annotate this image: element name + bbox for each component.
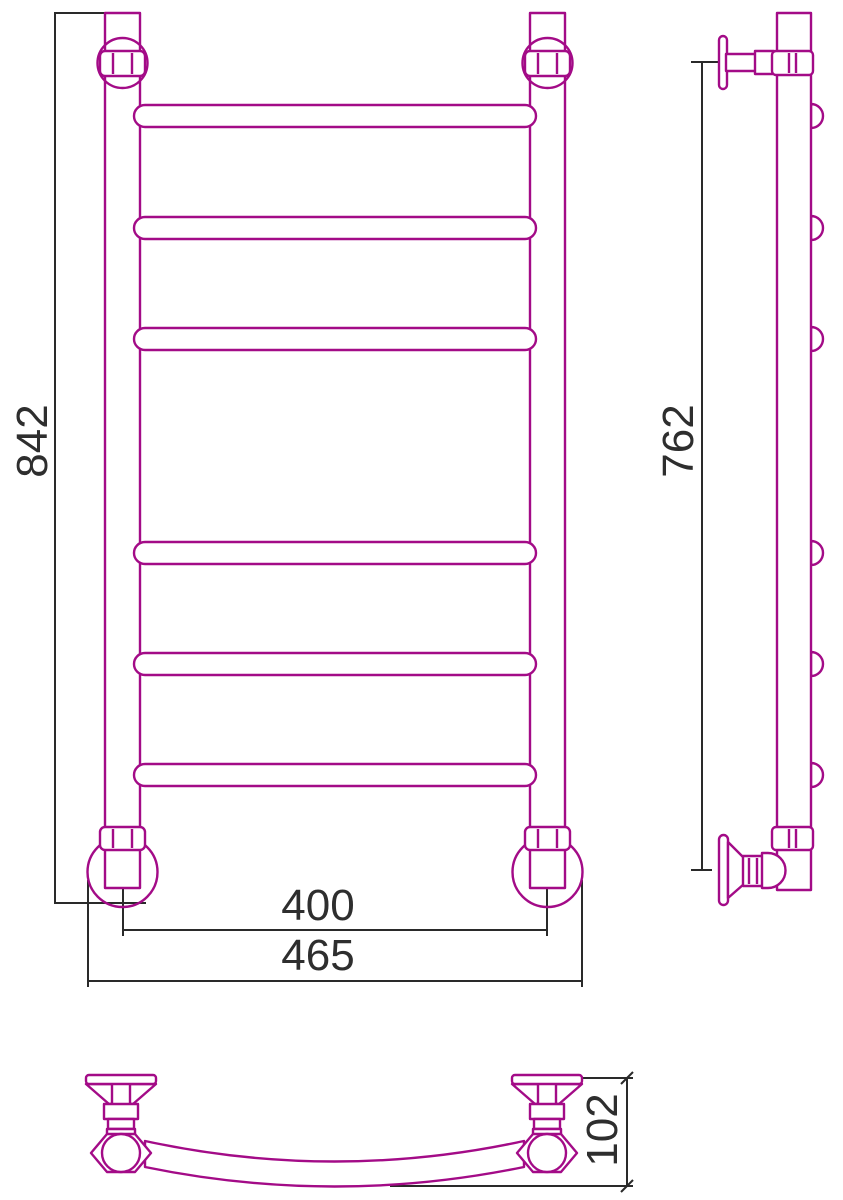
fitting-collar-2 [108, 1119, 134, 1129]
hex-nut-top-left [100, 51, 145, 76]
fitting-collar-1 [530, 1104, 564, 1119]
curved-rung-top-view [145, 1141, 524, 1187]
right-rail [530, 13, 565, 888]
fitting-circle [528, 1134, 566, 1172]
rung-3 [134, 328, 536, 350]
hex-nut-body [525, 827, 570, 850]
bottom-fitting-left [86, 1075, 156, 1172]
bracket-nut [772, 51, 813, 75]
rung-4 [134, 542, 536, 564]
rung-2 [134, 217, 536, 239]
hex-nut-bottom-right [525, 827, 570, 850]
hex-nut-body [100, 51, 145, 76]
wall-flange [719, 835, 728, 905]
dim-label-465: 465 [281, 931, 354, 980]
bar-end-profile-5 [811, 652, 823, 676]
dim-label-762: 762 [654, 404, 703, 477]
bottom-fitting-right [512, 1075, 582, 1172]
bar-end-profile-4 [811, 541, 823, 565]
outline-layer [86, 13, 823, 1187]
rung-5 [134, 653, 536, 675]
fitting-circle [102, 1134, 140, 1172]
wall-plate [512, 1075, 582, 1084]
drawing-canvas: 842 762 400 465 102 [0, 0, 843, 1200]
bar-end-profile-2 [811, 216, 823, 240]
left-rail [105, 13, 140, 888]
bracket-boss [762, 853, 786, 888]
bracket-nut [772, 827, 813, 850]
wall-plate [86, 1075, 156, 1084]
hex-nut-body [100, 827, 145, 850]
side-pipe [777, 13, 811, 890]
bottom-view [86, 1075, 582, 1187]
dim-label-400: 400 [281, 881, 354, 930]
bracket-cone [728, 842, 744, 898]
rung-1 [134, 105, 536, 127]
dim-label-842: 842 [8, 404, 57, 477]
hex-nut-top-right [525, 51, 570, 76]
bracket-hex-collar [743, 856, 763, 886]
bracket-stem [726, 54, 757, 71]
rung-6 [134, 764, 536, 786]
bar-end-profile-3 [811, 327, 823, 351]
front-view [88, 13, 583, 907]
bar-end-profile-1 [811, 104, 823, 128]
side-view [719, 13, 823, 905]
fitting-collar-1 [104, 1104, 138, 1119]
dimension-layer [54, 13, 719, 1192]
technical-drawing: 842 762 400 465 102 [0, 0, 843, 1200]
hex-nut-body [525, 51, 570, 76]
bar-end-profile-6 [811, 763, 823, 787]
fitting-collar-2 [534, 1119, 560, 1129]
hex-nut-bottom-left [100, 827, 145, 850]
dim-label-102: 102 [578, 1093, 627, 1166]
